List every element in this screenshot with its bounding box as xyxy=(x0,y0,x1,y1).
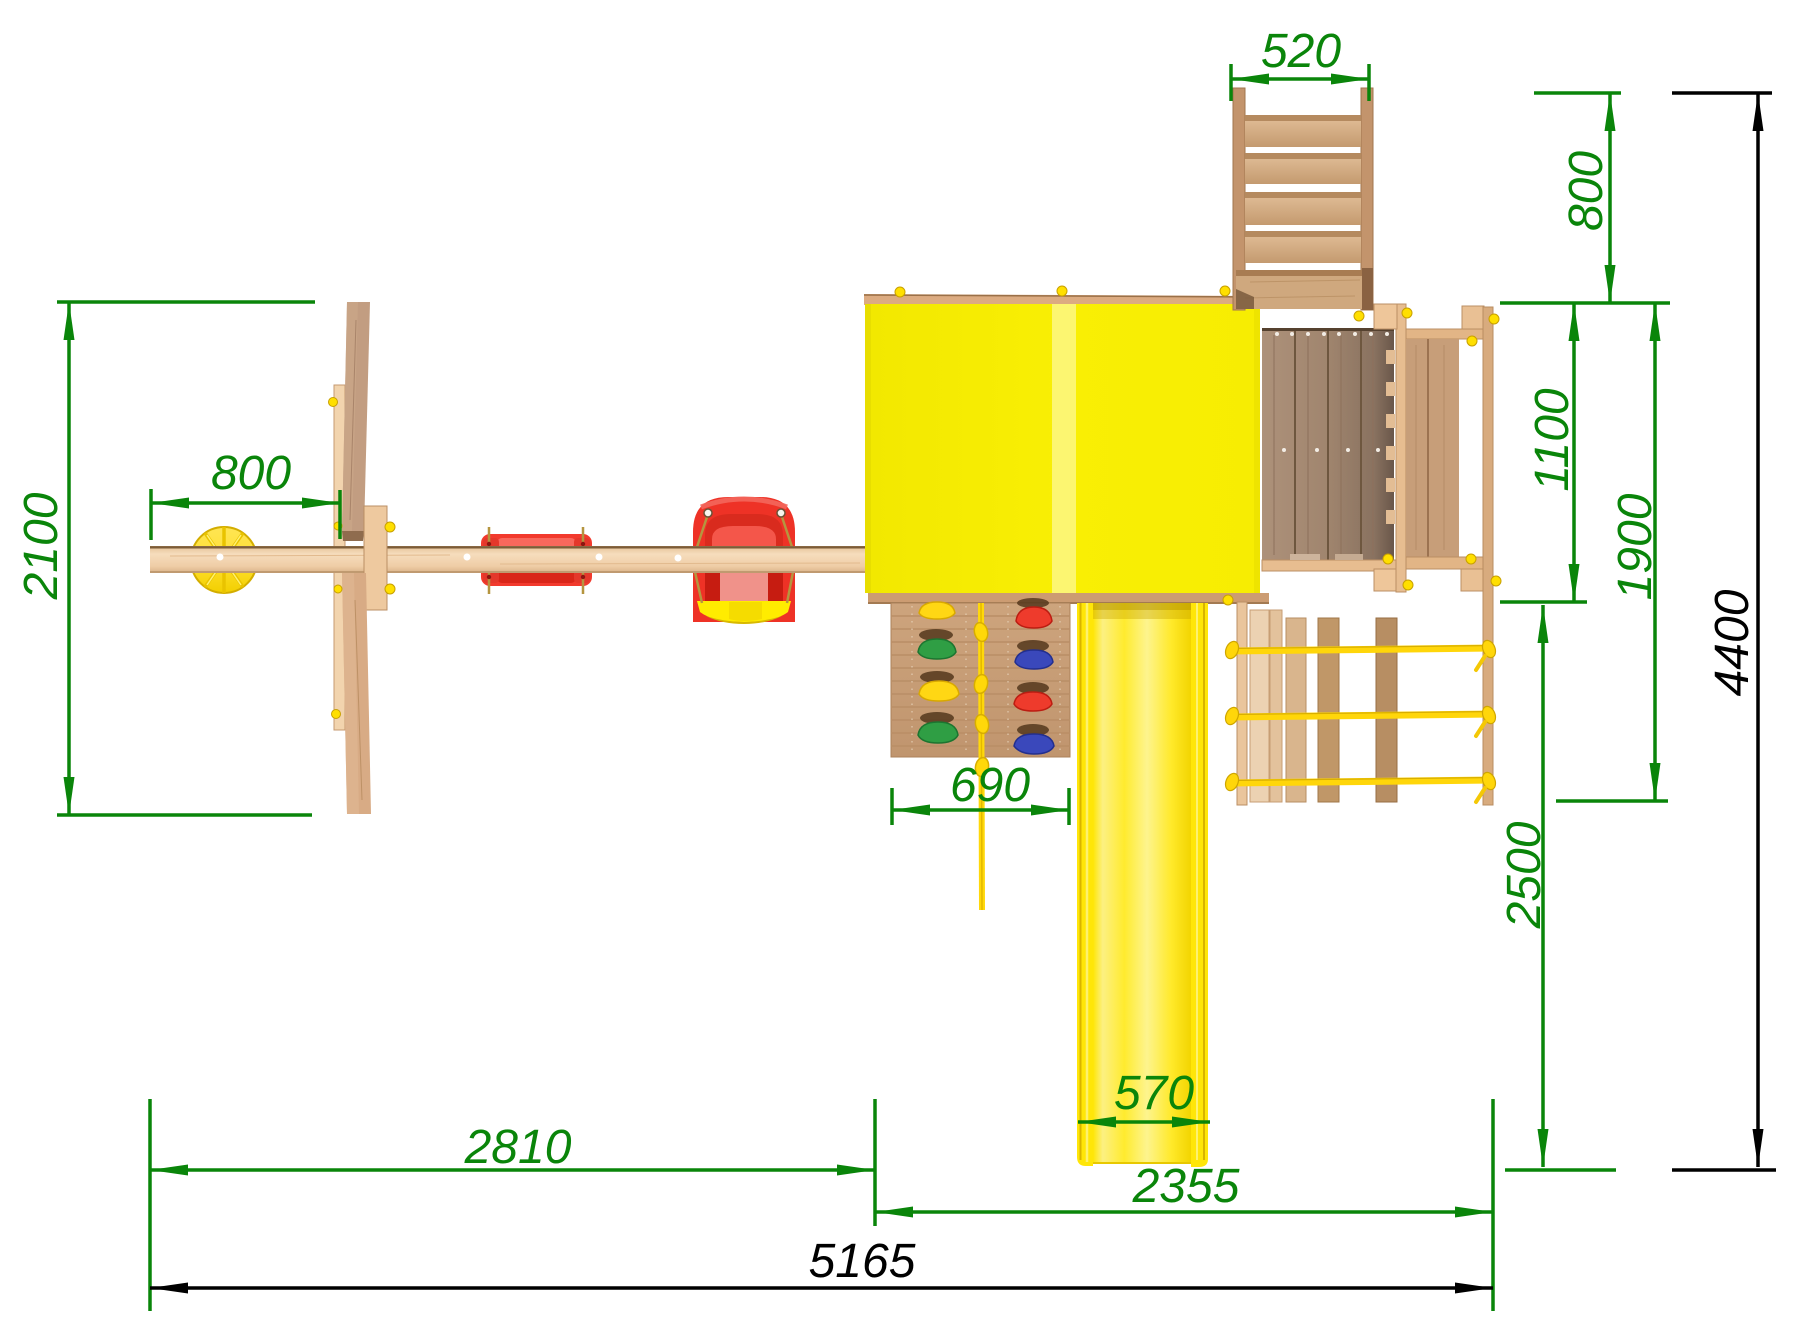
svg-text:520: 520 xyxy=(1261,25,1341,78)
svg-text:1100: 1100 xyxy=(1526,388,1579,492)
svg-text:570: 570 xyxy=(1114,1067,1194,1120)
svg-text:2100: 2100 xyxy=(15,492,68,600)
svg-text:800: 800 xyxy=(211,447,291,500)
svg-text:2355: 2355 xyxy=(1132,1160,1240,1213)
svg-text:800: 800 xyxy=(1560,151,1613,231)
svg-text:690: 690 xyxy=(950,759,1030,812)
svg-text:4400: 4400 xyxy=(1706,589,1759,696)
svg-text:2500: 2500 xyxy=(1498,821,1551,929)
svg-text:5165: 5165 xyxy=(809,1235,916,1288)
svg-text:2810: 2810 xyxy=(464,1121,572,1174)
svg-text:1900: 1900 xyxy=(1609,493,1662,600)
